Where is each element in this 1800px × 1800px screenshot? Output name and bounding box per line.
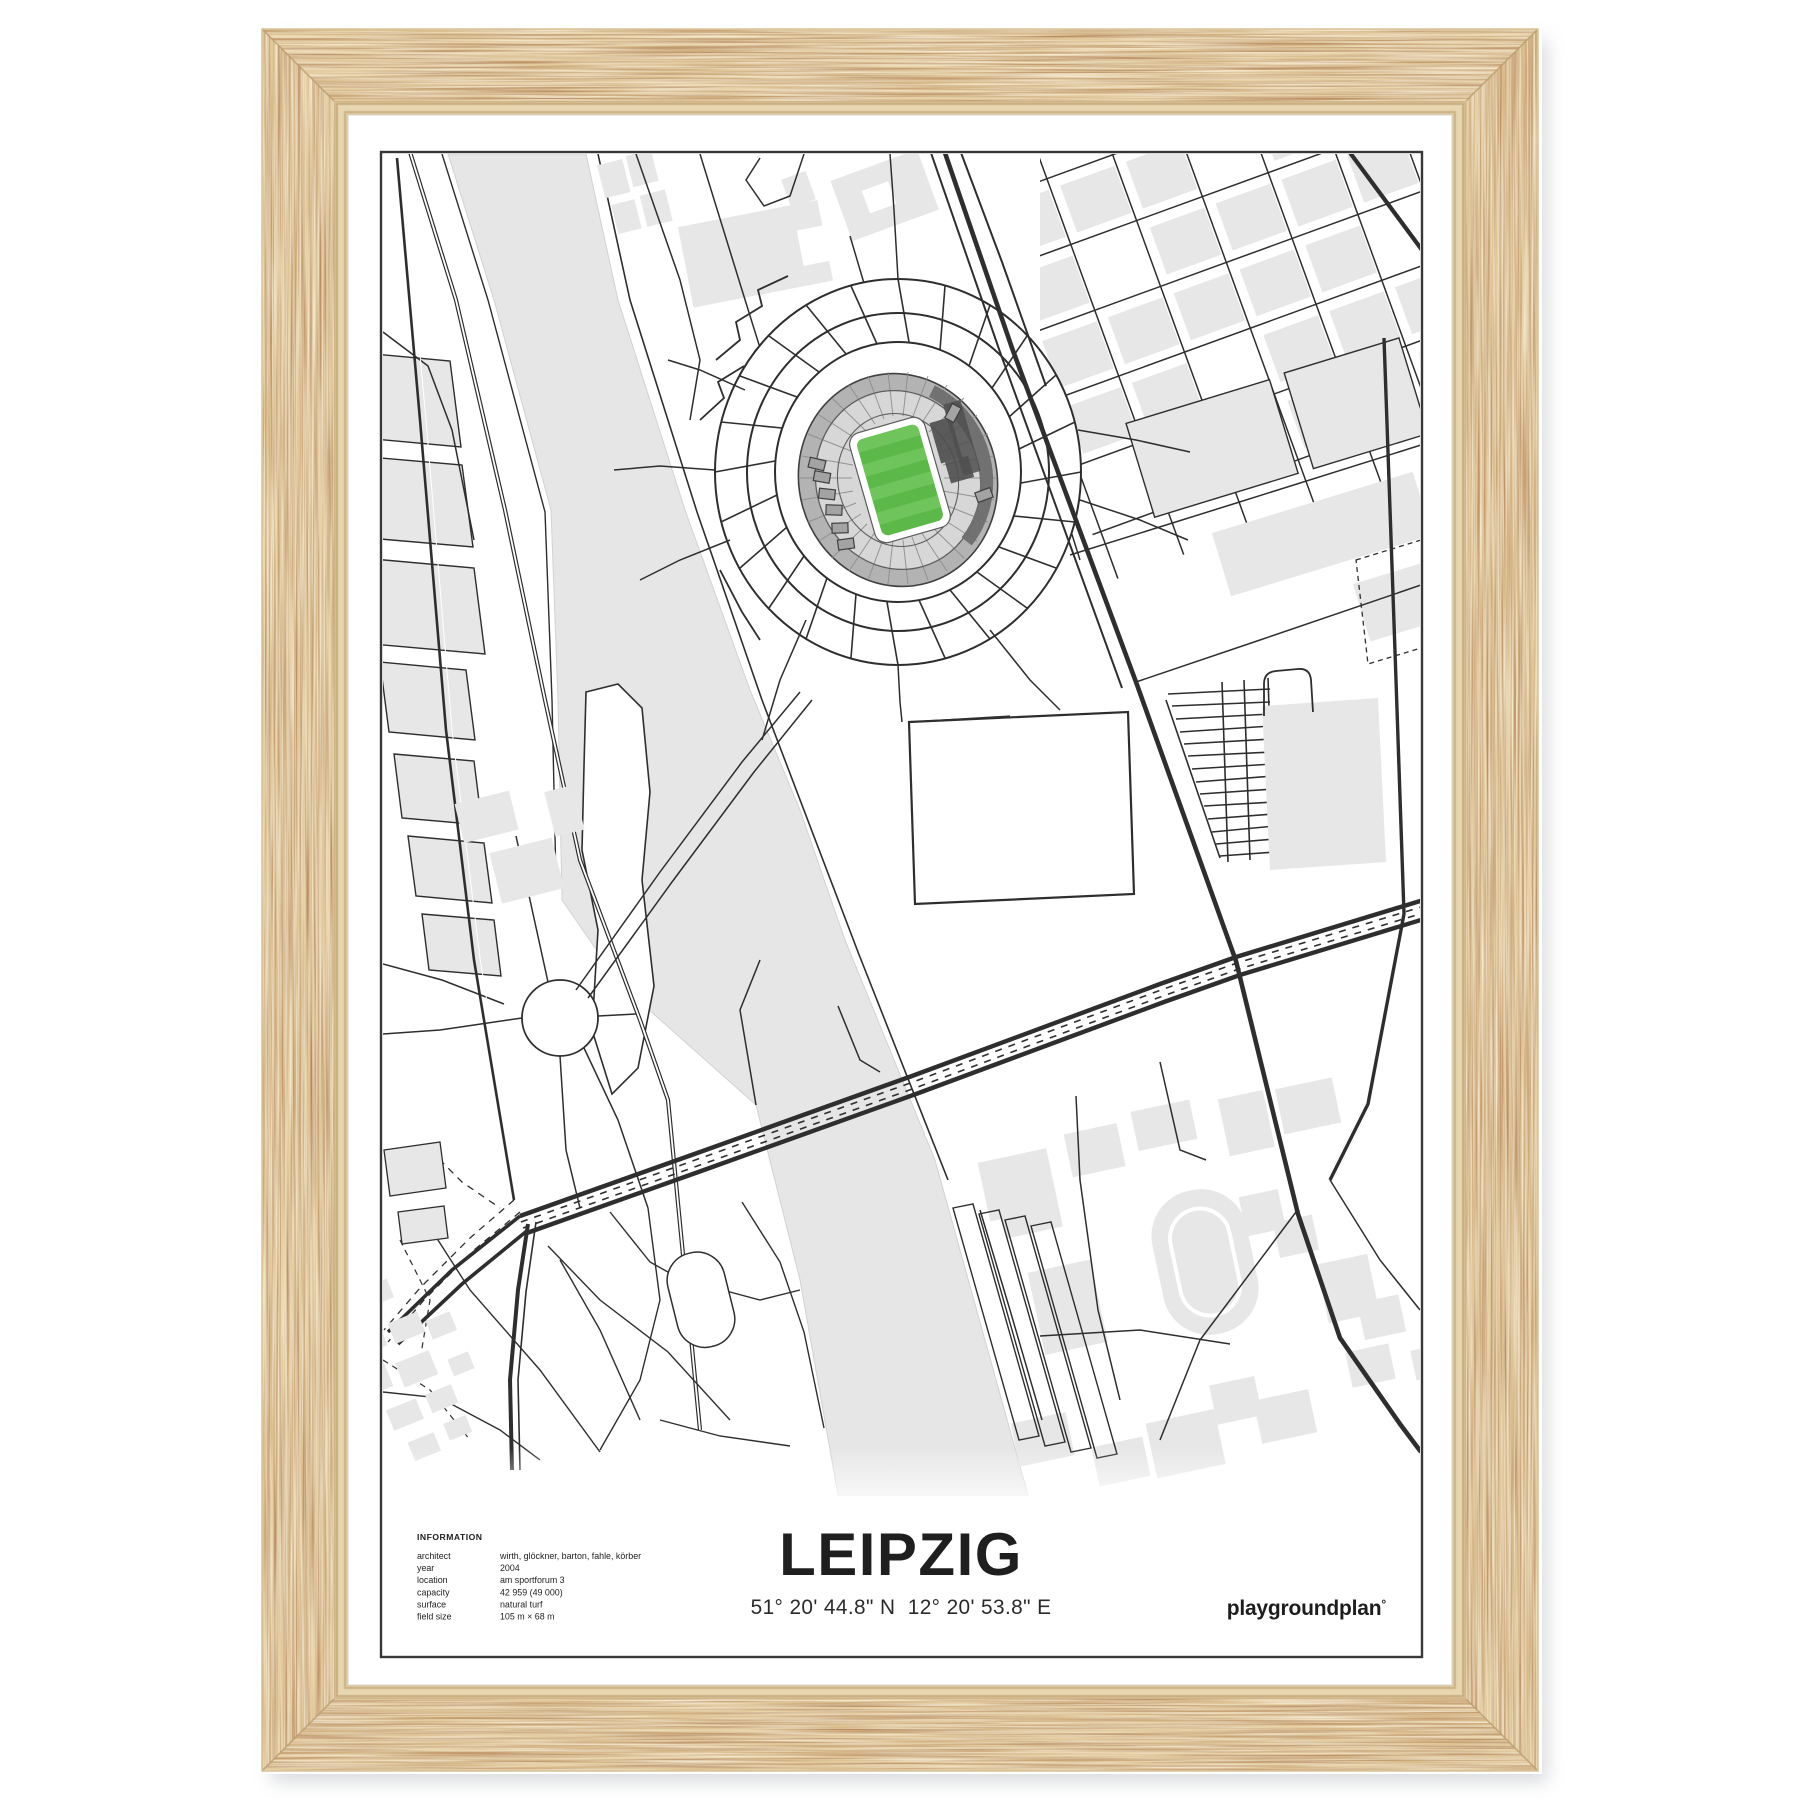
svg-text:architect: architect bbox=[417, 1551, 451, 1561]
svg-text:location: location bbox=[417, 1575, 448, 1585]
svg-text:natural turf: natural turf bbox=[500, 1599, 543, 1609]
svg-text:wirth, glöckner, barton, fahle: wirth, glöckner, barton, fahle, körber bbox=[499, 1551, 641, 1561]
svg-text:am sportforum 3: am sportforum 3 bbox=[500, 1575, 565, 1585]
svg-text:field size: field size bbox=[417, 1612, 452, 1622]
svg-text:2004: 2004 bbox=[500, 1563, 520, 1573]
svg-text:INFORMATION: INFORMATION bbox=[417, 1532, 483, 1542]
svg-text:surface: surface bbox=[417, 1599, 446, 1609]
svg-text:51° 20' 44.8" N 12° 20' 53.8": 51° 20' 44.8" N 12° 20' 53.8" E bbox=[751, 1596, 1052, 1619]
svg-text:year: year bbox=[417, 1563, 434, 1573]
svg-text:capacity: capacity bbox=[417, 1587, 450, 1597]
svg-text:42 959 (49 000): 42 959 (49 000) bbox=[500, 1587, 563, 1597]
svg-text:105 m × 68 m: 105 m × 68 m bbox=[500, 1612, 555, 1622]
svg-text:playgroundplan°: playgroundplan° bbox=[1227, 1597, 1387, 1620]
svg-text:LEIPZIG: LEIPZIG bbox=[779, 1521, 1023, 1588]
